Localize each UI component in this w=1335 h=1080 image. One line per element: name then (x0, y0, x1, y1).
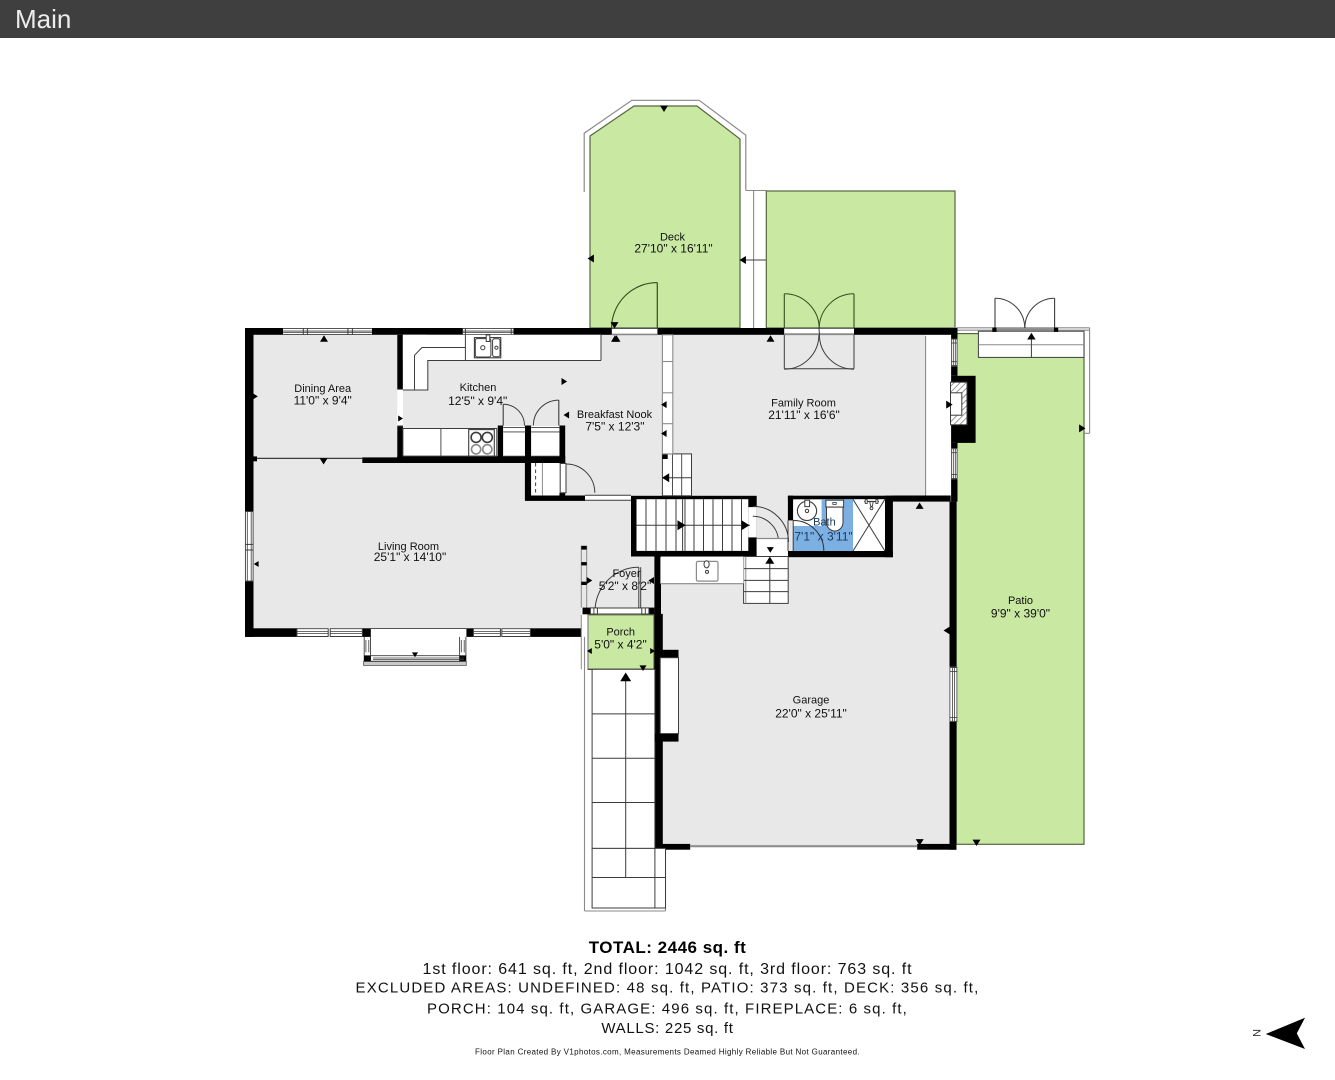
svg-text:5'2" x 8'2": 5'2" x 8'2" (599, 579, 651, 593)
svg-text:27'10" x 16'11": 27'10" x 16'11" (634, 242, 712, 256)
svg-text:PORCH: 104 sq. ft, GARAGE: 496: PORCH: 104 sq. ft, GARAGE: 496 sq. ft, F… (427, 1001, 908, 1018)
svg-text:Floor Plan Created By V1photos: Floor Plan Created By V1photos.com, Meas… (475, 1048, 860, 1057)
svg-text:11'0" x 9'4": 11'0" x 9'4" (294, 394, 352, 408)
svg-text:22'0" x 25'11": 22'0" x 25'11" (775, 707, 847, 721)
svg-text:Bath: Bath (813, 517, 836, 529)
svg-text:21'11" x 16'6": 21'11" x 16'6" (768, 408, 840, 422)
svg-text:Garage: Garage (793, 695, 830, 707)
svg-text:Porch: Porch (606, 626, 635, 638)
svg-text:WALLS: 225 sq. ft: WALLS: 225 sq. ft (601, 1020, 733, 1037)
svg-text:Kitchen: Kitchen (460, 382, 497, 394)
svg-text:EXCLUDED AREAS: UNDEFINED: 48: EXCLUDED AREAS: UNDEFINED: 48 sq. ft, PA… (356, 980, 980, 997)
svg-text:7'1" x 3'11": 7'1" x 3'11" (794, 530, 852, 544)
svg-text:12'5" x 9'4": 12'5" x 9'4" (448, 394, 507, 408)
svg-text:TOTAL: 2446 sq. ft: TOTAL: 2446 sq. ft (589, 938, 747, 957)
svg-text:Patio: Patio (1008, 595, 1033, 607)
svg-text:7'5" x 12'3": 7'5" x 12'3" (585, 420, 644, 434)
svg-text:25'1" x 14'10": 25'1" x 14'10" (374, 550, 447, 564)
svg-text:1st floor: 641 sq. ft, 2nd flo: 1st floor: 641 sq. ft, 2nd floor: 1042 s… (423, 961, 913, 978)
svg-text:5'0" x 4'2": 5'0" x 4'2" (594, 638, 646, 652)
svg-text:N: N (1250, 1029, 1262, 1037)
svg-text:9'9" x 39'0": 9'9" x 39'0" (991, 607, 1050, 621)
